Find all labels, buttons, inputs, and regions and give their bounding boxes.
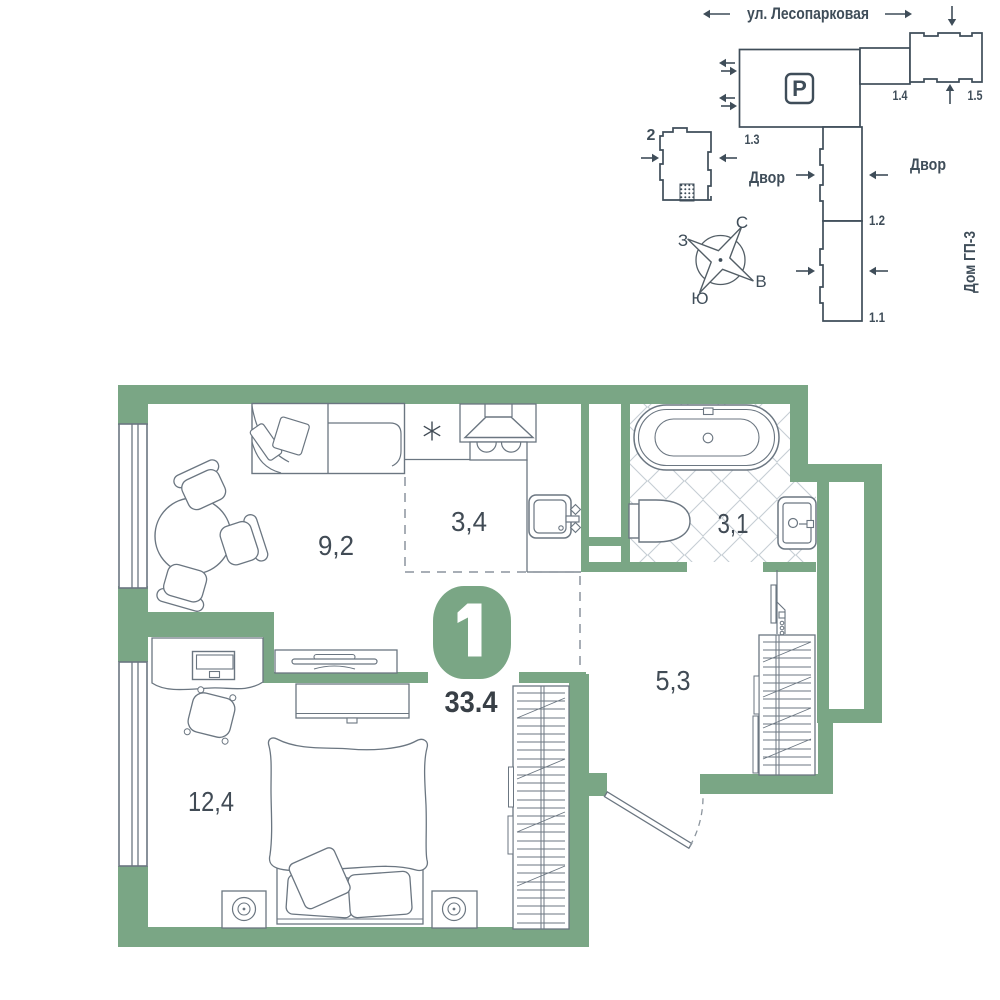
svg-text:1.5: 1.5 xyxy=(968,87,983,103)
svg-text:Ю: Ю xyxy=(691,289,708,308)
svg-text:Двор: Двор xyxy=(749,168,785,187)
svg-text:5,3: 5,3 xyxy=(656,665,691,696)
svg-text:Дом ГП-3: Дом ГП-3 xyxy=(962,231,979,293)
svg-text:ул. Лесопарковая: ул. Лесопарковая xyxy=(747,4,869,23)
svg-text:З: З xyxy=(678,231,688,250)
svg-text:1.4: 1.4 xyxy=(893,87,908,103)
svg-text:1.1: 1.1 xyxy=(869,309,885,325)
svg-text:3,4: 3,4 xyxy=(451,506,487,537)
svg-text:1.3: 1.3 xyxy=(745,131,760,147)
svg-text:1.2: 1.2 xyxy=(869,212,885,228)
svg-text:12,4: 12,4 xyxy=(188,786,234,817)
svg-text:P: P xyxy=(792,76,807,101)
svg-text:2: 2 xyxy=(647,127,656,144)
svg-text:Двор: Двор xyxy=(910,155,946,174)
svg-text:С: С xyxy=(736,213,748,232)
svg-text:В: В xyxy=(755,272,766,291)
svg-text:3,1: 3,1 xyxy=(718,508,749,539)
svg-text:9,2: 9,2 xyxy=(318,530,354,561)
svg-text:33.4: 33.4 xyxy=(445,686,498,719)
